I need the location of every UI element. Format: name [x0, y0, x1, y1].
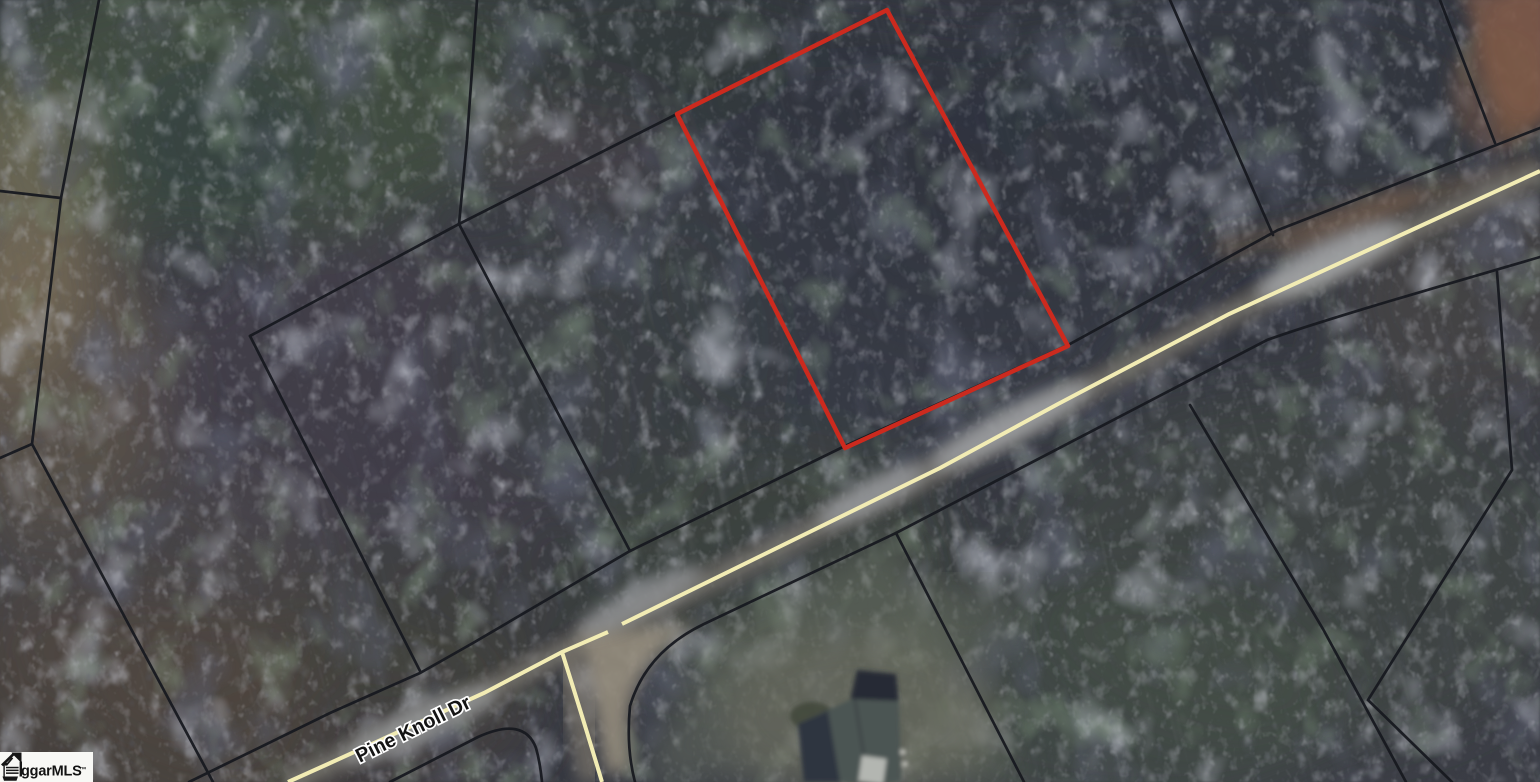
svg-text:ggarMLS: ggarMLS	[21, 764, 82, 780]
svg-text:™: ™	[79, 765, 87, 774]
